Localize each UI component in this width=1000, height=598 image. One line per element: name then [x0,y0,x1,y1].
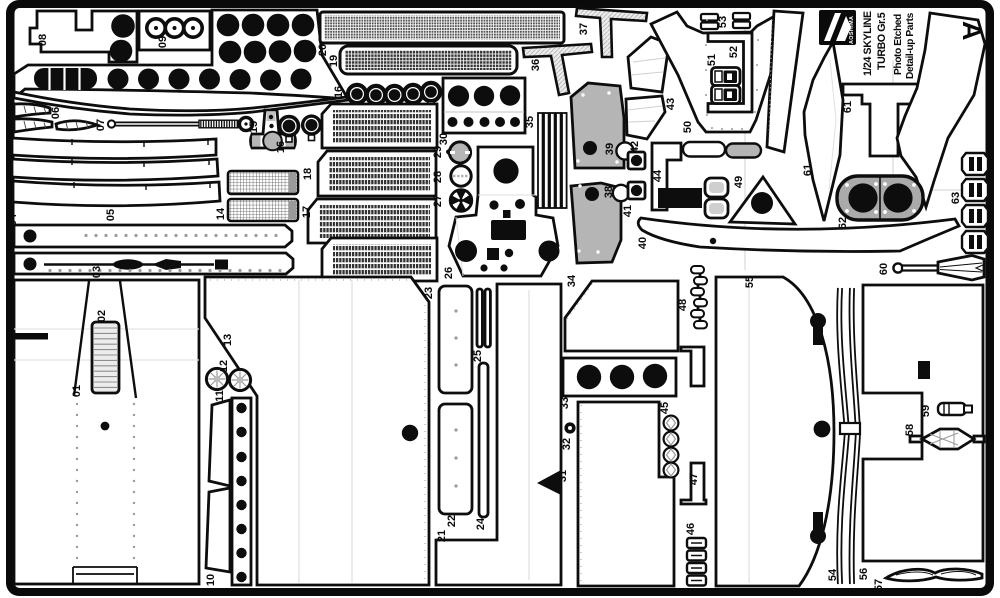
svg-text:13: 13 [222,334,234,346]
svg-text:03: 03 [91,266,103,278]
svg-text:37: 37 [578,23,590,35]
svg-text:38: 38 [603,186,615,198]
svg-text:23: 23 [423,287,435,299]
svg-text:24: 24 [475,517,487,530]
svg-text:Detail-up Parts: Detail-up Parts [905,12,916,79]
svg-text:60: 60 [878,263,890,275]
svg-text:11: 11 [214,390,226,402]
svg-text:07: 07 [95,119,107,131]
svg-text:26: 26 [443,267,455,279]
svg-text:35: 35 [524,116,536,128]
svg-text:53: 53 [717,16,729,28]
svg-text:55: 55 [744,276,756,288]
svg-text:A: A [957,21,987,41]
svg-text:49: 49 [733,176,745,188]
svg-text:01: 01 [71,385,83,397]
svg-text:27: 27 [432,195,444,207]
svg-text:42: 42 [629,141,641,153]
svg-text:63: 63 [950,192,962,204]
svg-text:08: 08 [37,34,49,46]
svg-text:51: 51 [706,54,718,66]
svg-text:46: 46 [685,523,697,535]
svg-text:14: 14 [215,207,227,220]
svg-text:57: 57 [873,579,885,591]
svg-text:02: 02 [96,310,108,322]
svg-text:47: 47 [688,473,700,485]
svg-text:1/24 SKYLINE: 1/24 SKYLINE [862,11,874,76]
svg-text:31: 31 [557,470,569,482]
svg-text:59: 59 [920,405,932,417]
svg-text:22: 22 [446,515,458,527]
svg-text:61: 61 [802,164,814,176]
svg-text:29: 29 [432,146,444,158]
svg-text:50: 50 [682,121,694,133]
svg-text:32: 32 [561,438,573,450]
svg-text:54: 54 [827,568,839,581]
svg-text:TURBO Gr.5: TURBO Gr.5 [876,12,888,70]
svg-text:19: 19 [328,55,340,67]
svg-text:44: 44 [652,169,664,182]
svg-text:20: 20 [317,44,329,56]
svg-text:33: 33 [559,397,571,409]
svg-text:52: 52 [728,46,740,58]
svg-text:61: 61 [842,101,854,113]
svg-text:05: 05 [105,209,117,221]
svg-text:Photo Etched: Photo Etched [893,14,904,75]
svg-text:56: 56 [858,568,870,580]
svg-text:17: 17 [301,206,313,218]
svg-text:16: 16 [333,86,345,98]
svg-text:16: 16 [275,141,287,153]
svg-text:30: 30 [438,133,450,145]
svg-text:15: 15 [248,121,260,133]
svg-text:AOSHIMA: AOSHIMA [849,16,855,44]
svg-text:10: 10 [205,574,217,586]
svg-text:43: 43 [665,98,677,110]
svg-text:12: 12 [218,360,230,372]
svg-text:06: 06 [50,107,62,119]
svg-text:09: 09 [157,36,169,48]
svg-text:39: 39 [604,143,616,155]
svg-text:21: 21 [436,530,448,542]
svg-text:28: 28 [432,171,444,183]
svg-text:36: 36 [530,59,542,71]
svg-text:40: 40 [637,237,649,249]
svg-text:58: 58 [904,424,916,436]
svg-text:45: 45 [659,402,671,414]
svg-text:25: 25 [472,350,484,362]
svg-text:18: 18 [302,168,314,180]
svg-text:48: 48 [677,299,689,311]
svg-text:41: 41 [622,205,634,217]
svg-text:34: 34 [566,274,578,287]
